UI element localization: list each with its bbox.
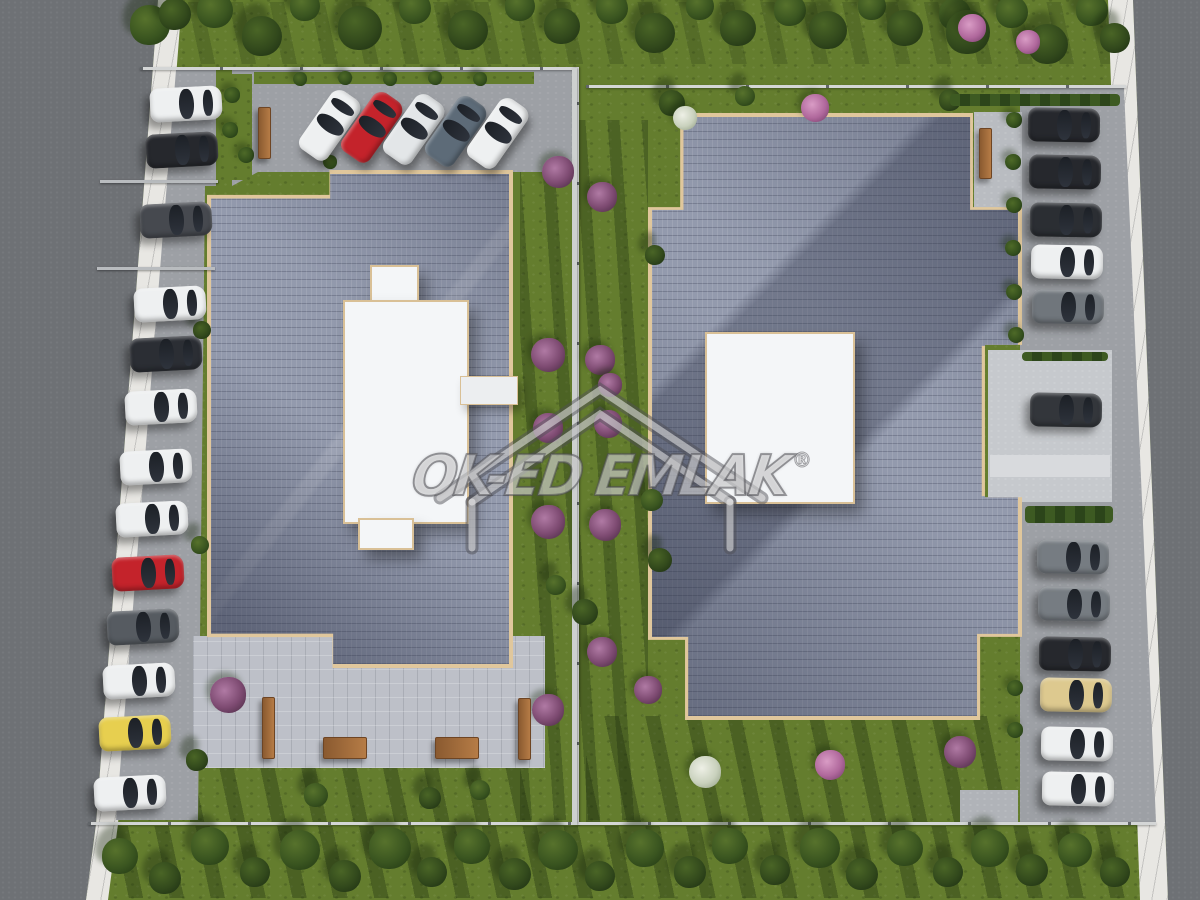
bench [262,697,275,759]
hedge [1025,506,1113,523]
tree [809,11,847,49]
render-layer [0,0,1200,900]
bush-purple [585,345,615,375]
tree [674,856,706,888]
bush-green [1006,284,1022,300]
bench [979,128,992,179]
bush-green [238,147,254,163]
tree [280,830,320,870]
tree [448,10,488,50]
car [139,201,213,239]
car [1030,202,1103,237]
tree [149,862,181,894]
tree [242,16,282,56]
car [149,85,223,123]
tree [417,857,447,887]
tree [191,536,209,554]
car [1037,539,1110,574]
scene: OK-ED EMLAK ® [0,0,1200,900]
tree [240,857,270,887]
tree [635,13,675,53]
bush-purple [532,694,564,726]
bush-white [689,756,721,788]
bush-white [673,106,697,130]
hedge [950,94,1120,106]
tree [197,0,233,28]
bush-purple [531,338,565,372]
bush-green [222,122,238,138]
tree [1100,23,1130,53]
tree [846,858,878,890]
car [1039,636,1112,671]
tree [1100,857,1130,887]
tree [338,6,382,50]
bush-green [1006,112,1022,128]
hedge [1022,352,1108,361]
tree [712,828,748,864]
tree [596,0,628,24]
parking-rail [100,180,218,183]
bush-purple [944,736,976,768]
tree [1016,854,1048,886]
tree [1058,833,1092,867]
car [1042,771,1115,806]
bench [323,737,367,759]
car [133,285,207,323]
tree [454,828,490,864]
tree [760,855,790,885]
bush-green [1005,240,1021,256]
bush-purple [594,410,622,438]
bush-pink [815,750,845,780]
bush-pink [1016,30,1040,54]
bush-pink [801,94,829,122]
tree [290,0,320,21]
bush-green [224,87,240,103]
bush-purple [587,637,617,667]
tree [971,829,1009,867]
bush-purple [531,505,565,539]
car [1041,726,1114,761]
tree [499,858,531,890]
bush-green [1007,680,1023,696]
bush-purple [589,509,621,541]
car [1040,677,1113,712]
car [115,500,189,538]
tree [329,860,361,892]
bush-purple [210,677,246,713]
bush-green [1008,327,1024,343]
car [1028,107,1101,142]
tree [887,830,923,866]
bench [518,698,531,760]
bush-green [1006,197,1022,213]
tree [369,827,411,869]
tree [641,489,663,511]
tree [645,245,665,265]
bush-purple [598,373,622,397]
tree [572,599,598,625]
tree [933,857,963,887]
tree [626,829,664,867]
tree [648,548,672,572]
car [145,131,219,169]
tree [419,787,441,809]
car [106,608,180,646]
car [1031,244,1104,279]
bush-green [293,72,307,86]
parking-rail [97,267,215,270]
car [1029,154,1102,189]
car [1032,289,1105,324]
tree [191,827,229,865]
tree [159,0,191,30]
tree [735,86,755,106]
tree [887,10,923,46]
car [98,714,172,752]
tree [585,861,615,891]
car [102,662,176,700]
tree [720,10,756,46]
bush-green [1007,722,1023,738]
tree [546,575,566,595]
bush-purple [542,156,574,188]
tree [470,780,490,800]
bush-purple [533,413,563,443]
tree [304,783,328,807]
tree [505,0,535,21]
tree [102,838,138,874]
car [119,448,193,486]
car [111,554,185,592]
bush-green [473,72,487,86]
car [1038,586,1111,621]
bush-purple [587,182,617,212]
car [129,335,203,373]
car [93,774,167,812]
bush-green [338,71,352,85]
tree [399,0,431,24]
tree [800,828,840,868]
bench [435,737,479,759]
tree [544,8,580,44]
tree [686,0,714,20]
bush-purple [634,676,662,704]
bush-green [1005,154,1021,170]
bench [258,107,271,159]
tree [538,830,578,870]
car [1030,392,1103,427]
tree [186,749,208,771]
bush-green [383,72,397,86]
bush-pink [958,14,986,42]
car [124,388,198,426]
bush-green [428,71,442,85]
